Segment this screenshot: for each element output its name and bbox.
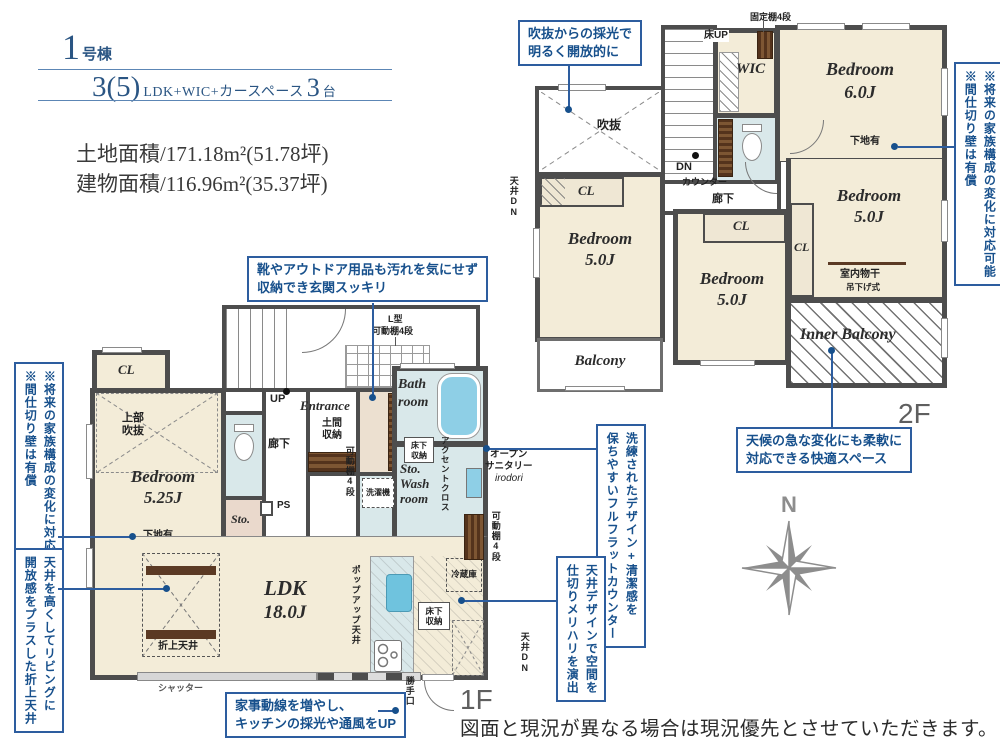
upper-void-label-1: 上部: [122, 412, 144, 425]
ps-label: PS: [277, 500, 290, 512]
building-number: 1: [62, 26, 80, 68]
underfloor-wash-box: 床下 収納: [404, 437, 434, 463]
shitaji-2f-label: 下地有: [850, 136, 880, 148]
bathroom-label-2: room: [398, 394, 428, 412]
header-rule-top: [38, 69, 392, 70]
bedroom-6-name: Bedroom: [800, 58, 920, 81]
leader-line: [372, 303, 374, 396]
bathroom-label: Bath room: [398, 376, 428, 411]
void-label: 吹抜: [597, 118, 621, 132]
stairs-dn-dot: [692, 152, 699, 159]
open-sanitary-label-2: サニタリー: [485, 461, 533, 472]
shelf-entrance-label: 可動棚4段: [344, 446, 355, 497]
washroom-label-1: Sto.: [400, 462, 429, 477]
compass-rose-icon: [739, 518, 839, 618]
leader-dot: [163, 585, 170, 592]
bedroom-5-right-label: Bedroom 5.0J: [810, 185, 928, 228]
bedroom-6-label: Bedroom 6.0J: [800, 58, 920, 103]
building-area: 建物面積/116.96m²(35.37坪): [76, 168, 328, 198]
leader-dot: [369, 394, 376, 401]
fixed-shelf: [757, 31, 773, 59]
underfloor-wash-1: 床下: [405, 441, 433, 451]
bedroom-6-size: 6.0J: [800, 81, 920, 104]
closet-right-label: CL: [794, 240, 809, 255]
leader-dot: [828, 347, 835, 354]
underfloor-wash-2: 収納: [405, 451, 433, 461]
window: [400, 363, 455, 369]
window: [102, 347, 142, 353]
fixed-shelf-label: 固定棚4段: [750, 12, 791, 23]
leader-line: [831, 352, 833, 427]
building-title: 1 号棟: [62, 26, 112, 68]
window: [700, 360, 755, 366]
underfloor-kitchen-2: 収納: [419, 616, 449, 626]
window: [941, 68, 948, 116]
ldk-size: 18.0J: [230, 601, 340, 625]
washer-label: 洗濯機: [366, 488, 390, 498]
kitchen-sink: [386, 574, 412, 612]
popup-ceiling-label: ポップアップ天井: [350, 565, 361, 645]
bathroom-label-1: Bath: [398, 376, 428, 394]
closet-1f-label: CL: [118, 362, 135, 378]
bedroom-525-size: 5.25J: [108, 487, 218, 508]
annotation-ceiling-design: 天井デザインで空間を 仕切りメリハリを演出: [556, 556, 606, 702]
plan-rooms: LDK+WIC+カースペース: [143, 81, 303, 101]
washer-box: 洗濯機: [362, 478, 394, 508]
l-shelf-label-1: L型: [388, 314, 403, 325]
shutter-label: シャッター: [158, 683, 203, 694]
coffered-ceiling-label: 折上天井: [156, 641, 200, 653]
floor-up-label: 床UP: [703, 30, 729, 42]
leader-line: [58, 536, 132, 538]
annotation-kaji-2: キッチンの採光や通風をUP: [235, 715, 396, 733]
land-area: 土地面積/171.18m²(51.78坪): [76, 138, 328, 168]
bedroom-5-left-size: 5.0J: [540, 249, 660, 270]
fixed-shelf-leader: [763, 21, 764, 32]
annotation-kaji: 家事動線を増やし、 キッチンの採光や通風をUP: [225, 692, 406, 738]
annotation-void-light-1: 吹抜からの採光で: [528, 25, 632, 43]
washroom-label: Sto. Wash room: [400, 462, 429, 507]
upper-void-cross: [96, 393, 218, 473]
wash-basin: [466, 468, 482, 498]
open-sanitary-label-1: オープン: [490, 449, 527, 460]
annotation-ceiling-design-2: 仕切りメリハリを演出: [562, 564, 581, 694]
stairs-1f: [226, 309, 290, 388]
annotation-partition-right: ※将来の家族構成の変化に対応可能 ※間仕切り壁は有償: [954, 62, 1000, 286]
annotation-ceiling-high-2: 開放感をプラスした折上天井: [20, 556, 39, 725]
open-sanitary-label-3: irodori: [495, 473, 523, 484]
annotation-void-light: 吹抜からの採光で 明るく開放的に: [518, 20, 642, 66]
toilet-tank-2f: [742, 124, 762, 132]
leader-dot: [392, 707, 399, 714]
ldk-label: LDK 18.0J: [230, 575, 340, 625]
annotation-weather: 天候の急な変化にも柔軟に 対応できる快適スペース: [736, 427, 912, 473]
annotation-ceiling-high-1: 天井を高くしてリビングに: [39, 556, 58, 725]
ceiling-dn-cross: [452, 620, 484, 676]
washroom-label-2: Wash: [400, 477, 429, 492]
accent-cross-label: アクセントクロス: [440, 436, 450, 512]
bedroom-525-name: Bedroom: [108, 466, 218, 487]
l-shelf-label-2: 可動棚4段: [372, 326, 413, 337]
window: [941, 200, 948, 242]
storage-1f-label: Sto.: [231, 512, 250, 527]
annotation-weather-2: 対応できる快適スペース: [746, 450, 902, 468]
toilet-tank-1f: [234, 424, 254, 432]
annotation-shoes-1: 靴やアウトドア用品も汚れを気にせず: [257, 261, 478, 279]
floor-2f-label: 2F: [898, 400, 931, 428]
window: [558, 84, 606, 91]
leader-dot: [891, 143, 898, 150]
leader-line: [898, 146, 954, 148]
balcony-label: Balcony: [560, 352, 640, 371]
leader-line: [489, 448, 596, 450]
closet-mid-label: CL: [733, 218, 750, 234]
window: [86, 424, 93, 479]
bedroom-5-right-name: Bedroom: [810, 185, 928, 206]
underfloor-kitchen-box: 床下 収納: [418, 602, 450, 630]
doma-label-1: 土間: [322, 418, 342, 430]
window: [797, 23, 845, 30]
back-door-gap: [422, 674, 454, 681]
ceiling-dn-2f-label: 天井DN: [508, 176, 519, 218]
wic-label: WIC: [736, 60, 765, 79]
closet-left-label: CL: [578, 183, 595, 199]
ceiling-dn-1f-label: 天井DN: [519, 632, 530, 674]
leader-line: [568, 64, 570, 108]
stairs-dn-label: DN: [676, 161, 692, 174]
drying-pipe: [828, 262, 906, 265]
annotation-partition-right-2: ※間仕切り壁は有償: [960, 70, 979, 278]
leader-dot: [129, 533, 136, 540]
hallway-1f-label: 廊下: [268, 438, 290, 451]
window: [941, 318, 948, 358]
annotation-ceiling-design-1: 天井デザインで空間を: [581, 564, 600, 694]
annotation-ceiling-high: 天井を高くしてリビングに 開放感をプラスした折上天井: [14, 548, 64, 733]
plan-cars: 3: [307, 73, 320, 103]
compass-north-label: N: [767, 492, 811, 518]
bedroom-5-mid-name: Bedroom: [676, 268, 788, 289]
disclaimer-text: 図面と現況が異なる場合は現況優先とさせていただきます。: [460, 712, 998, 741]
ldk-name: LDK: [230, 575, 340, 601]
hallway-2f-label: 廊下: [712, 193, 734, 206]
kitchen-shelf: [464, 514, 484, 560]
shutter-window: [137, 672, 317, 681]
window: [862, 23, 910, 30]
building-suffix: 号棟: [82, 43, 112, 64]
annotation-partition-right-1: ※将来の家族構成の変化に対応可能: [979, 70, 998, 278]
doma-label-2: 収納: [322, 430, 342, 442]
stove-burners: [374, 640, 402, 672]
annotation-partition-left-1: ※将来の家族構成の変化に対応可能: [39, 370, 58, 578]
shelf-kitchen-label: 可動棚4段: [490, 511, 501, 562]
bedroom-5-left-label: Bedroom 5.0J: [540, 228, 660, 271]
washroom-label-3: room: [400, 492, 429, 507]
window: [86, 548, 93, 588]
fridge-label: 冷蔵庫: [451, 569, 477, 579]
counter-label: カウンター: [682, 177, 727, 188]
annotation-void-light-2: 明るく開放的に: [528, 43, 632, 61]
leader-dot: [458, 597, 465, 604]
stairs-up-label: UP: [270, 393, 285, 406]
annotation-partition-left-2: ※間仕切り壁は有償: [20, 370, 39, 578]
counter-2f: [718, 119, 733, 177]
annotation-flat-counter-1: 洗練されたデザイン+清潔感を: [621, 432, 640, 640]
bathtub: [438, 374, 480, 438]
closet-hatch: [541, 178, 565, 205]
upper-void-label-2: 吹抜: [122, 425, 144, 438]
bedroom-5-right-size: 5.0J: [810, 206, 928, 227]
bedroom-5-left-name: Bedroom: [540, 228, 660, 249]
indoor-drying-label: 室内物干: [840, 269, 880, 281]
stairs-up-dot: [283, 388, 290, 395]
underfloor-kitchen-1: 床下: [419, 606, 449, 616]
leader-dot: [483, 445, 490, 452]
annotation-kaji-1: 家事動線を増やし、: [235, 697, 396, 715]
ceiling-beam: [146, 566, 216, 575]
fridge-box: 冷蔵庫: [446, 558, 482, 592]
leader-line: [464, 600, 556, 602]
back-door-arc: [424, 681, 454, 711]
floorplan-flyer: 1 号棟 3(5) LDK+WIC+カースペース 3 台 土地面積/171.18…: [0, 0, 1000, 750]
annotation-shoes-2: 収納でき玄関スッキリ: [257, 279, 478, 297]
leader-dot: [565, 106, 572, 113]
entrance-label: Entrance: [300, 398, 350, 414]
floor-1f-label: 1F: [460, 686, 493, 714]
window: [533, 228, 540, 278]
ps-box: [260, 501, 273, 516]
bedroom-525-label: Bedroom 5.25J: [108, 466, 218, 509]
plan-cars-suffix: 台: [323, 81, 336, 100]
window: [565, 386, 625, 391]
inner-balcony-label: Inner Balcony: [800, 325, 896, 345]
leader-line: [58, 588, 166, 590]
ceiling-beam: [146, 630, 216, 639]
header-rule-bottom: [38, 100, 392, 101]
annotation-shoes: 靴やアウトドア用品も汚れを気にせず 収納でき玄関スッキリ: [247, 256, 488, 302]
bedroom-5-mid-size: 5.0J: [676, 289, 788, 310]
l-shelf-leader: [395, 337, 396, 346]
annotation-weather-1: 天候の急な変化にも柔軟に: [746, 432, 902, 450]
bedroom-5-mid-label: Bedroom 5.0J: [676, 268, 788, 311]
hanging-type-label: 吊下げ式: [846, 282, 880, 292]
